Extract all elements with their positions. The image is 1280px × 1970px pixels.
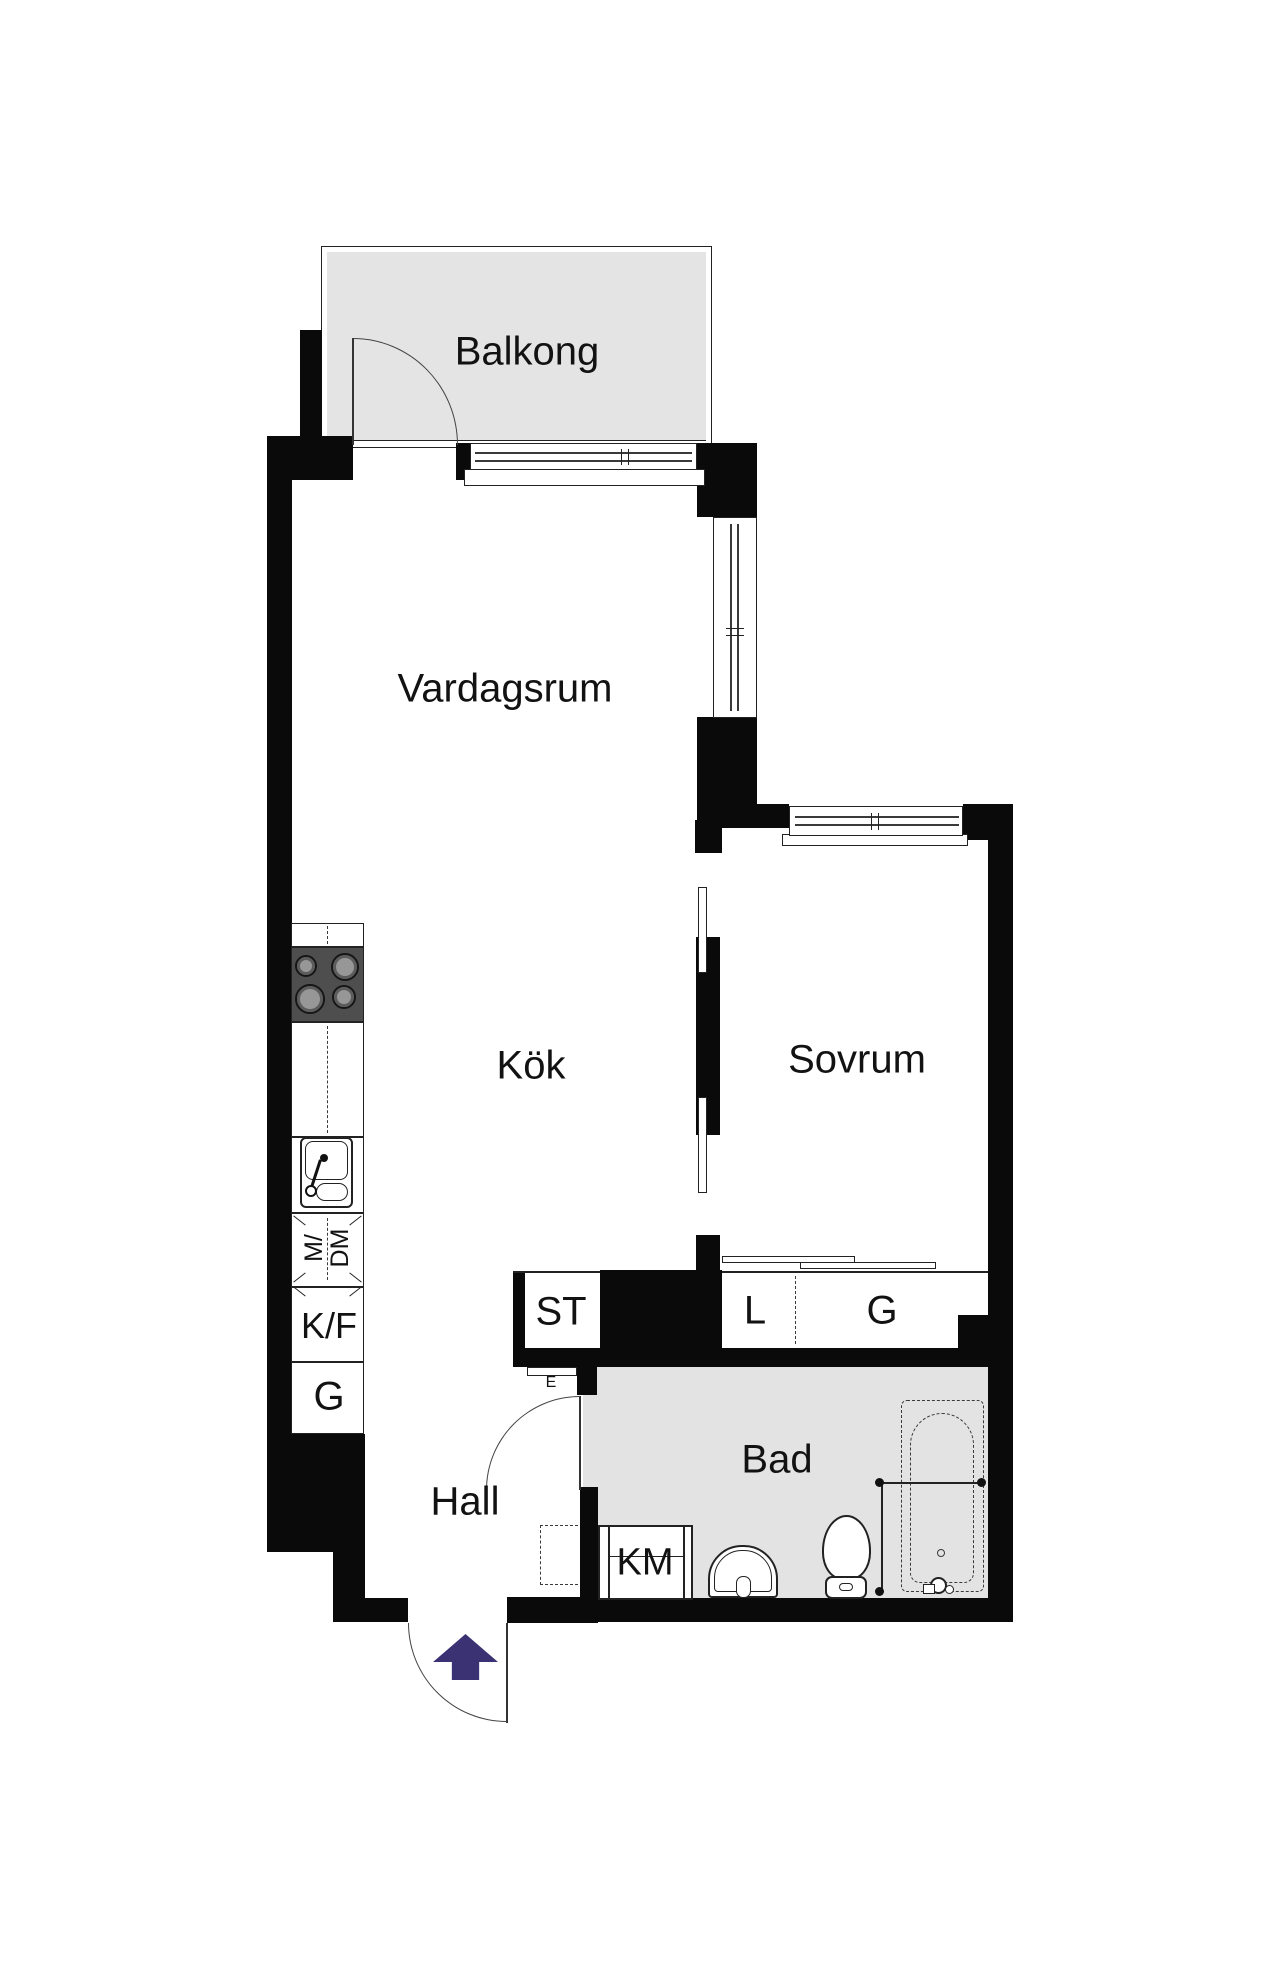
counter-centerline [327, 1026, 328, 1133]
bedroom-window [789, 806, 963, 836]
room-label-bedroom: Sovrum [788, 1038, 926, 1083]
bathtub-mixer [923, 1584, 935, 1594]
balcony-window [470, 443, 697, 470]
wall [333, 1552, 365, 1598]
wall [695, 820, 722, 853]
shower-screen-knob [875, 1478, 884, 1487]
sliding-door-panel [698, 1097, 707, 1193]
room-label-hall: Hall [431, 1480, 500, 1525]
mdm-line2: DM [327, 1229, 353, 1268]
wall [513, 1348, 1013, 1367]
toilet-button [839, 1583, 853, 1591]
bathtub-faucet-small [945, 1585, 954, 1594]
wall [720, 804, 789, 828]
hall-reserved-space [540, 1525, 578, 1585]
wall [988, 804, 1013, 1622]
wall [958, 1315, 988, 1348]
closet-label-l: L [744, 1289, 766, 1334]
shower-screen-knob [977, 1478, 986, 1487]
unit-label-g: G [313, 1375, 344, 1420]
shower-screen [881, 1482, 883, 1593]
sliding-door-panel [698, 887, 707, 973]
burner-icon [295, 955, 317, 977]
closet-sliding-door [800, 1262, 936, 1269]
unit-label-mdm: M/ DM [301, 1229, 354, 1268]
room-label-kitchen: Kök [497, 1044, 566, 1089]
burner-icon [332, 985, 356, 1009]
closet-label-g: G [866, 1289, 897, 1334]
washing-machine-panel [683, 1525, 685, 1600]
bathroom-door-arc [486, 1396, 580, 1490]
living-side-window [713, 517, 757, 718]
burner-icon [331, 953, 359, 981]
unit-label-e: E [546, 1374, 557, 1392]
wall [600, 1270, 722, 1348]
closet-front-line [513, 1271, 600, 1273]
mdm-line1: M/ [301, 1229, 327, 1268]
room-label-bathroom: Bad [741, 1438, 812, 1483]
wall [697, 443, 757, 517]
window-sill [464, 469, 705, 486]
faucet-lever [305, 1185, 317, 1197]
washing-machine-panel [608, 1525, 610, 1600]
closet-divider [795, 1276, 796, 1344]
washbasin-tap [736, 1576, 751, 1598]
wall [267, 1434, 365, 1552]
shower-screen-knob [875, 1587, 884, 1596]
counter-centerline [327, 926, 328, 944]
closet-front-line [722, 1271, 988, 1273]
faucet-icon [320, 1154, 328, 1162]
burner-icon [295, 984, 325, 1014]
floor-plan: Balkong Vardagsrum Kök Sovrum Hall Bad S… [0, 0, 1280, 1970]
wall [267, 436, 292, 1434]
bathtub-inner [910, 1413, 974, 1583]
closet-label-st: ST [535, 1290, 586, 1335]
unit-label-km: KM [617, 1542, 674, 1585]
wall [513, 1272, 525, 1348]
wall [507, 1597, 598, 1623]
wall [333, 1598, 408, 1622]
wall [577, 1367, 597, 1395]
room-label-balcony: Balkong [455, 330, 600, 375]
sink-basin-small [316, 1183, 348, 1201]
unit-label-kf: K/F [301, 1305, 357, 1347]
shower-screen [882, 1482, 983, 1484]
room-label-living: Vardagsrum [398, 667, 613, 712]
wall [300, 330, 322, 445]
bathtub-drain [937, 1549, 945, 1557]
toilet-bowl-icon [822, 1515, 871, 1580]
wall [580, 1598, 1013, 1622]
wall [696, 1235, 720, 1273]
